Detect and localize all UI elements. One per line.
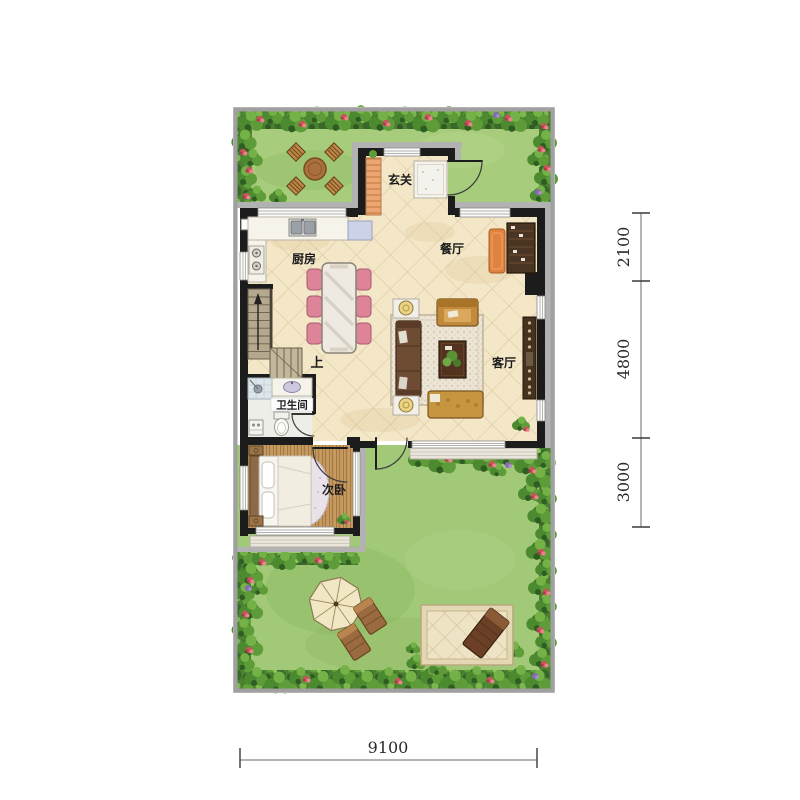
right-wall-window-2	[537, 400, 545, 421]
living-porch-steps	[410, 448, 537, 459]
label-kitchen: 厨房	[292, 251, 316, 266]
doormat	[414, 161, 447, 198]
bedroom-steps	[250, 536, 350, 547]
shoe-bench	[366, 158, 381, 215]
patio	[421, 605, 513, 665]
toilet	[274, 412, 289, 436]
dimension-right: 2100 4800 3000	[614, 213, 650, 527]
kitchen-fridge	[348, 221, 372, 240]
dim-right-4800: 4800	[614, 339, 633, 380]
entrance-window	[384, 148, 420, 156]
tv-cabinet	[523, 317, 536, 399]
floorplan-page: 玄关 厨房 餐厅 客厅 卫生间 次卧 上 2100 4800 3000 9100	[0, 0, 800, 800]
kitchen-window	[258, 208, 346, 217]
chaise-bottom	[428, 391, 483, 418]
living-south-window	[412, 441, 505, 448]
lamp-table-bottom	[393, 396, 419, 415]
bathroom-cabinet	[249, 420, 263, 435]
label-dining: 餐厅	[440, 241, 464, 256]
dining-window	[460, 208, 510, 217]
nightstand-top	[249, 446, 263, 455]
dimension-bottom: 9100	[240, 738, 537, 768]
coffee-table	[439, 341, 466, 378]
shower	[248, 378, 272, 399]
dim-right-3000: 3000	[614, 462, 633, 503]
label-stairs-up: 上	[310, 355, 323, 370]
kitchen-stove	[249, 246, 264, 274]
garden-table	[304, 158, 326, 180]
left-wall-window	[240, 252, 248, 280]
kitchen-sink	[289, 219, 316, 237]
bathroom-vanity	[272, 378, 312, 396]
sofa	[396, 321, 421, 397]
label-bedroom: 次卧	[322, 482, 346, 497]
nightstand-bottom	[249, 516, 263, 526]
dining-sideboard	[489, 223, 535, 273]
armchair-top	[437, 299, 478, 326]
dining-table-set	[307, 263, 371, 353]
floorplan-drawing: 玄关 厨房 餐厅 客厅 卫生间 次卧 上 2100 4800 3000 9100	[0, 0, 800, 800]
sideboard-runner-rug	[489, 229, 505, 273]
dim-bottom-9100: 9100	[368, 738, 409, 757]
dim-right-2100: 2100	[614, 227, 633, 268]
entrance-plant	[369, 150, 377, 158]
bedroom-east-window	[353, 452, 360, 516]
label-living: 客厅	[491, 355, 516, 370]
lamp-table-top	[393, 299, 419, 318]
bedroom-west-window	[240, 466, 248, 510]
right-wall-window-1	[537, 296, 545, 319]
label-bathroom: 卫生间	[276, 399, 308, 412]
label-entrance: 玄关	[388, 172, 412, 187]
bedroom-south-window	[256, 527, 334, 535]
